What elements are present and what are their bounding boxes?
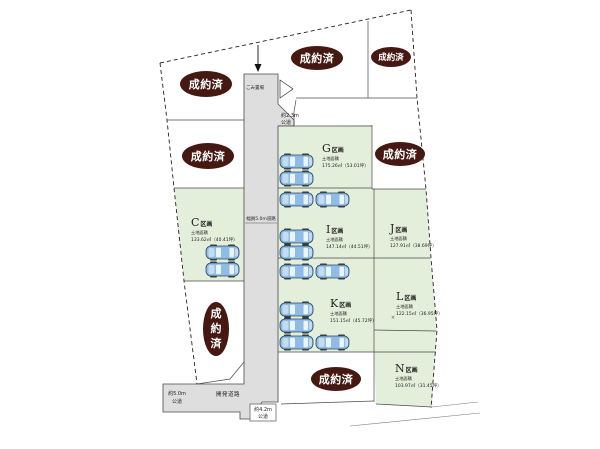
car-icon <box>280 302 313 318</box>
svg-text:約: 約 <box>211 321 222 335</box>
car-icon <box>280 192 313 208</box>
svg-text:成約済: 成約済 <box>319 372 354 386</box>
sold-badge: 成約済 <box>182 143 234 169</box>
svg-text:成約済: 成約済 <box>383 147 418 161</box>
svg-text:103.97㎡（31.45坪）: 103.97㎡（31.45坪） <box>395 382 442 389</box>
car-icon <box>280 171 313 187</box>
left-road-label-2: 公道 <box>172 398 182 405</box>
development-road-label: 開発道路 <box>216 390 240 398</box>
car-icon <box>316 335 349 351</box>
left-road-label-1: 約5.0m <box>168 390 186 397</box>
svg-text:土地面積: 土地面積 <box>191 229 209 236</box>
car-icon <box>316 264 349 280</box>
site-plan-svg: 成約済 成約済 成約済 成約済 成約済 成 約 済 成約済 <box>0 0 600 449</box>
site-plan-page: 成約済 成約済 成約済 成約済 成約済 成 約 済 成約済 <box>0 0 600 449</box>
svg-text:土地面積: 土地面積 <box>395 375 413 382</box>
svg-text:175.26㎡（53.01坪）: 175.26㎡（53.01坪） <box>322 162 369 169</box>
svg-text:成約済: 成約済 <box>300 51 335 65</box>
svg-text:土地面積: 土地面積 <box>330 310 348 317</box>
survey-cross-mark: × <box>391 315 395 321</box>
road-width-label: 幅員5.0m道路 <box>246 215 276 222</box>
svg-text:151.15㎡（45.72坪）: 151.15㎡（45.72坪） <box>330 317 377 324</box>
car-icon <box>206 262 239 278</box>
car-icon <box>280 154 313 170</box>
car-icon <box>316 192 349 208</box>
svg-text:土地面積: 土地面積 <box>396 303 414 310</box>
car-icon <box>280 318 313 334</box>
sold-badge-vertical: 成 約 済 <box>203 302 229 356</box>
corner-road-label-1: 約4.2m <box>254 406 272 413</box>
svg-text:済: 済 <box>211 336 223 350</box>
garbage-station-label: ごみ置場 <box>246 84 264 91</box>
sold-badge: 成約済 <box>375 142 425 166</box>
svg-text:土地面積: 土地面積 <box>322 155 340 162</box>
corner-road-label-2: 公道 <box>258 413 268 420</box>
east-road-label-1: 約2.3m <box>281 112 299 119</box>
sold-badge: 成約済 <box>371 47 411 67</box>
svg-text:土地面積: 土地面積 <box>326 236 344 243</box>
svg-text:成約済: 成約済 <box>191 149 226 163</box>
car-icon <box>280 245 313 261</box>
entrance-arrow-icon <box>255 45 262 72</box>
sold-badge: 成約済 <box>311 367 361 391</box>
svg-text:土地面積: 土地面積 <box>390 235 408 242</box>
sold-badge: 成約済 <box>180 71 232 97</box>
car-icon <box>206 245 239 261</box>
svg-text:133.62㎡（40.41坪）: 133.62㎡（40.41坪） <box>191 236 238 243</box>
east-road-label-2: 公道 <box>281 119 291 126</box>
svg-text:成約済: 成約済 <box>189 77 224 91</box>
svg-text:成約済: 成約済 <box>378 52 404 63</box>
svg-text:122.15㎡（36.95坪）: 122.15㎡（36.95坪） <box>396 310 443 317</box>
car-icon <box>280 335 313 351</box>
svg-text:147.14㎡（44.51坪）: 147.14㎡（44.51坪） <box>326 243 373 250</box>
car-icon <box>280 229 313 245</box>
car-icon <box>280 264 313 280</box>
sold-badge: 成約済 <box>291 46 343 70</box>
svg-text:127.91㎡（38.69坪）: 127.91㎡（38.69坪） <box>390 242 437 249</box>
svg-text:成: 成 <box>211 306 222 320</box>
